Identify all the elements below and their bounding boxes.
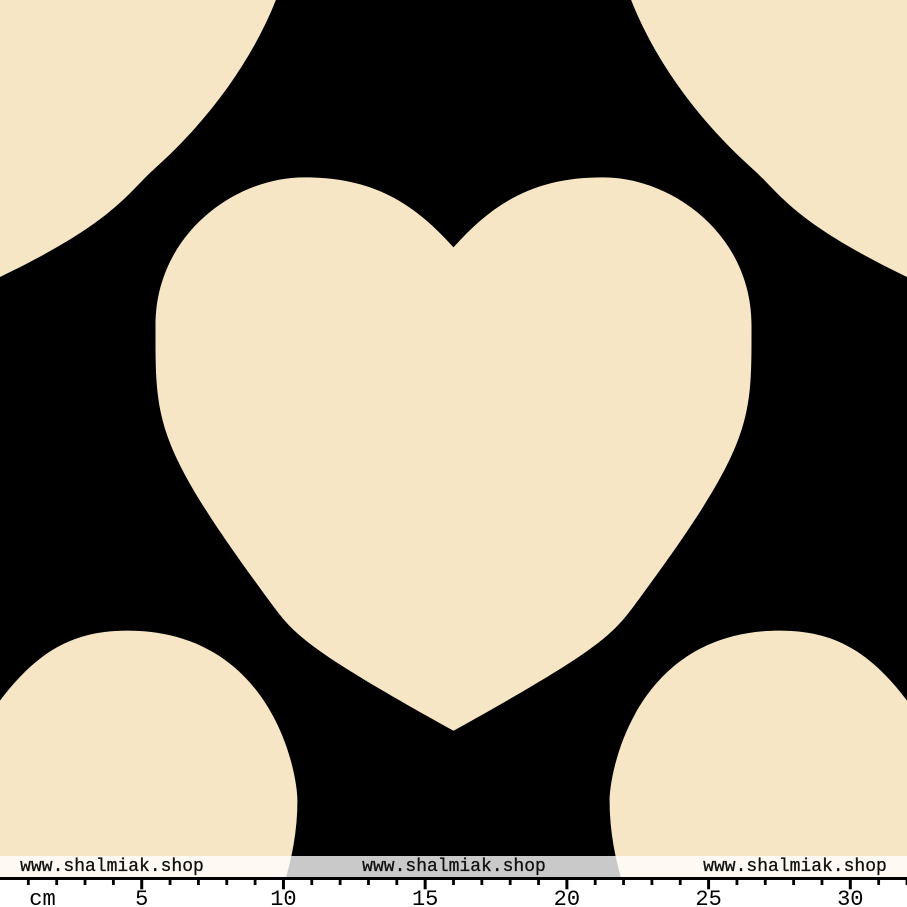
svg-text:15: 15: [412, 887, 438, 907]
svg-text:30: 30: [837, 887, 863, 907]
svg-text:20: 20: [554, 887, 580, 907]
svg-text:10: 10: [270, 887, 296, 907]
svg-text:5: 5: [135, 887, 148, 907]
svg-text:cm: cm: [29, 887, 55, 907]
svg-text:25: 25: [695, 887, 721, 907]
